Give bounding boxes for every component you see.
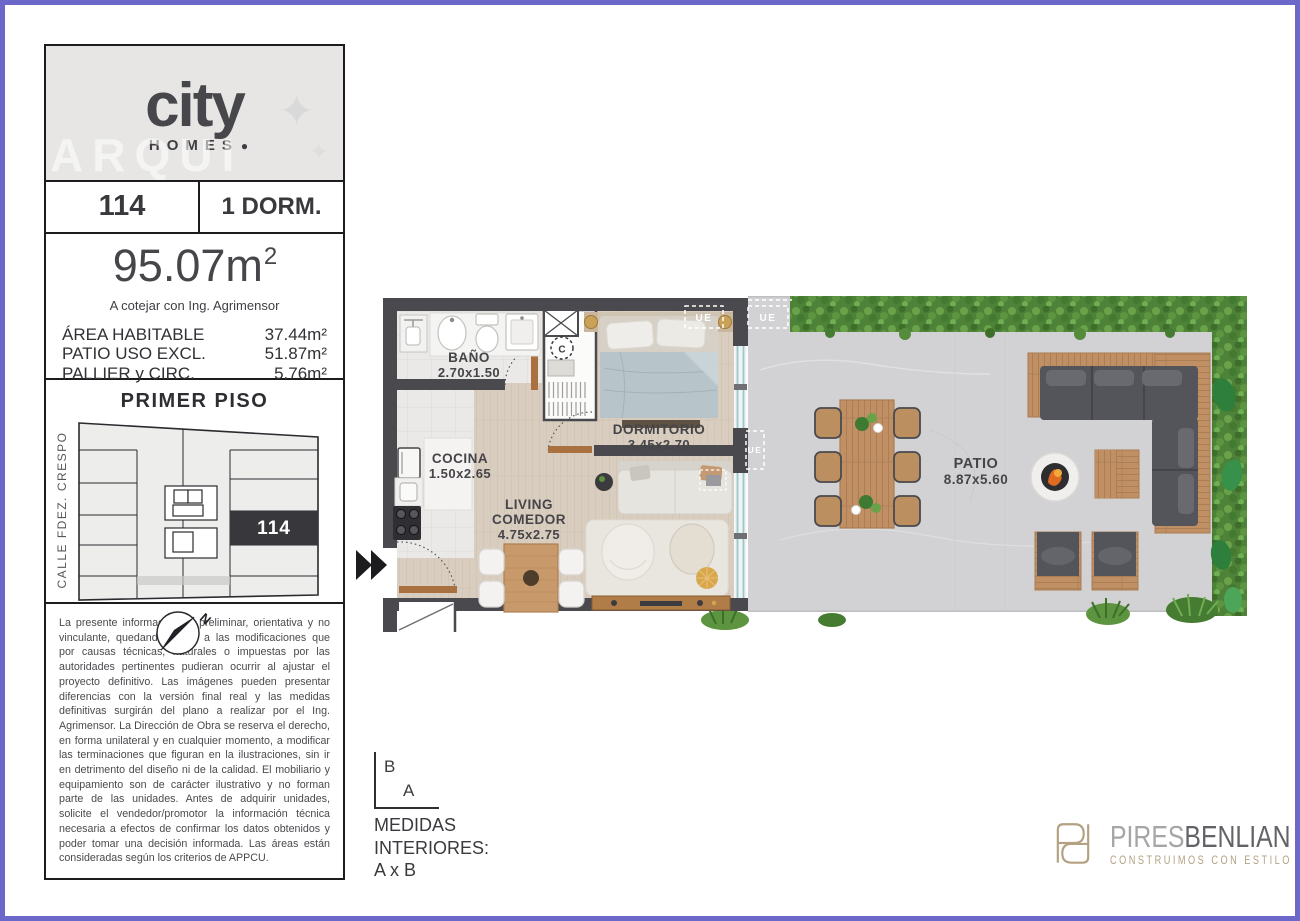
brochure-page: ARQUI ✦ ✦ city HOMES● 114 1 DORM. 95.07m…	[0, 0, 1300, 921]
fire-pit	[1031, 453, 1079, 501]
sliding-door-bedroom	[734, 346, 747, 428]
bedroom-door	[548, 446, 592, 453]
closet-label: C	[558, 345, 565, 356]
pallier-notch	[399, 602, 455, 632]
fridge-icon	[398, 448, 420, 478]
plants-right	[1209, 296, 1247, 616]
star-icon: ✦	[309, 138, 329, 167]
compass-icon: N	[157, 610, 214, 654]
developer-name-1: PIRES	[1110, 819, 1184, 854]
room-label-comedor: COMEDOR	[492, 512, 566, 527]
sliding-door-living	[734, 473, 747, 598]
unit-number: 114	[46, 182, 200, 232]
area-row-value: 37.44m²	[265, 325, 327, 345]
bedroom-furniture	[584, 312, 733, 428]
side-table	[595, 473, 613, 491]
measure-caption: MEDIDAS INTERIORES: A x B	[374, 814, 489, 882]
corridor-band	[137, 576, 230, 585]
kitchen-sink-icon	[400, 483, 417, 501]
toilet-icon	[476, 326, 498, 352]
measure-b-label: B	[384, 757, 395, 777]
measure-caption-line1: MEDIDAS	[374, 814, 489, 837]
room-dims-dormitorio: 3.45x2.70	[628, 437, 690, 452]
total-area-sup: 2	[264, 243, 277, 270]
ue-marker-label: UE	[760, 313, 777, 324]
room-label-bano: BAÑO	[448, 350, 490, 365]
entry-arrow-icon	[356, 550, 387, 580]
lamp-icon	[719, 316, 732, 329]
keyplan-drawing: 114 CALLE FDEZ. CRESPO N	[46, 380, 343, 664]
measure-caption-line2: INTERIORES:	[374, 837, 489, 860]
total-area-value: 95.07m	[113, 240, 263, 291]
developer-logo: PIRESBENLIAN CONSTRUIMOS CON ESTILO	[1046, 818, 1300, 868]
area-row-label: ÁREA HABITABLE	[62, 325, 204, 345]
developer-tagline: CONSTRUIMOS CON ESTILO	[1110, 855, 1292, 867]
area-rows: ÁREA HABITABLE 37.44m² PATIO USO EXCL. 5…	[46, 325, 343, 384]
ue-marker-label: UE	[696, 313, 713, 324]
armchair	[602, 524, 654, 580]
lamp-icon	[585, 316, 598, 329]
street-label: CALLE FDEZ. CRESPO	[55, 431, 69, 588]
floor-plan: C	[350, 294, 1250, 632]
keyplan-panel: PRIMER PISO	[46, 380, 343, 604]
armchair	[670, 524, 714, 574]
pillow	[606, 320, 654, 349]
logo-panel: ARQUI ✦ ✦ city HOMES●	[46, 46, 343, 182]
developer-name: PIRESBENLIAN	[1110, 822, 1292, 852]
area-row-label: PATIO USO EXCL.	[62, 344, 206, 364]
north-label: N	[197, 610, 214, 627]
room-label-dormitorio: DORMITORIO	[613, 422, 706, 437]
watermark-text: ARQUI	[50, 128, 243, 182]
room-dims-patio: 8.87x5.60	[944, 472, 1009, 487]
star-icon: ✦	[278, 86, 315, 137]
developer-name-2: BENLIAN	[1184, 819, 1290, 854]
total-area: 95.07m2	[46, 242, 343, 298]
sofa-pillow	[629, 465, 651, 482]
room-dims-living: 4.75x2.75	[498, 527, 560, 542]
area-row: ÁREA HABITABLE 37.44m²	[46, 325, 343, 345]
room-dims-cocina: 1.50x2.65	[429, 466, 491, 481]
deck-ottoman	[1095, 450, 1139, 498]
measure-diagram: B A	[374, 752, 439, 809]
unit-type: 1 DORM.	[200, 182, 343, 232]
measure-caption-line3: A x B	[374, 859, 489, 882]
area-row: PATIO USO EXCL. 51.87m²	[46, 344, 343, 364]
entry-door	[399, 586, 457, 593]
room-dims-bano: 2.70x1.50	[438, 365, 500, 380]
area-row-value: 51.87m²	[265, 344, 327, 364]
measure-a-label: A	[403, 781, 414, 801]
room-label-living: LIVING	[505, 497, 553, 512]
area-note: A cotejar con Ing. Agrimensor	[46, 298, 343, 313]
area-panel: 95.07m2 A cotejar con Ing. Agrimensor ÁR…	[46, 234, 343, 380]
unit-row: 114 1 DORM.	[46, 182, 343, 234]
highlighted-unit-number: 114	[257, 518, 291, 539]
developer-text: PIRESBENLIAN CONSTRUIMOS CON ESTILO	[1110, 822, 1292, 867]
room-label-cocina: COCINA	[432, 451, 488, 466]
ue-marker-label: UE	[748, 445, 763, 455]
sidebar: ARQUI ✦ ✦ city HOMES● 114 1 DORM. 95.07m…	[44, 44, 345, 880]
room-label-patio: PATIO	[954, 456, 999, 472]
pb-monogram-icon	[1046, 818, 1100, 868]
